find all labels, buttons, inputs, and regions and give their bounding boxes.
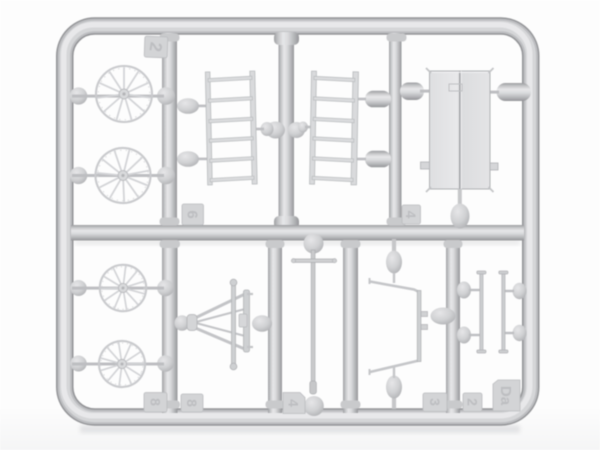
svg-text:4: 4 <box>403 211 419 219</box>
svg-text:4: 4 <box>286 399 302 407</box>
svg-text:3: 3 <box>427 398 443 406</box>
svg-text:2: 2 <box>465 398 481 406</box>
svg-text:Da: Da <box>497 386 514 406</box>
svg-text:8: 8 <box>184 399 200 407</box>
svg-text:6: 6 <box>184 210 201 218</box>
svg-text:8: 8 <box>148 398 164 406</box>
